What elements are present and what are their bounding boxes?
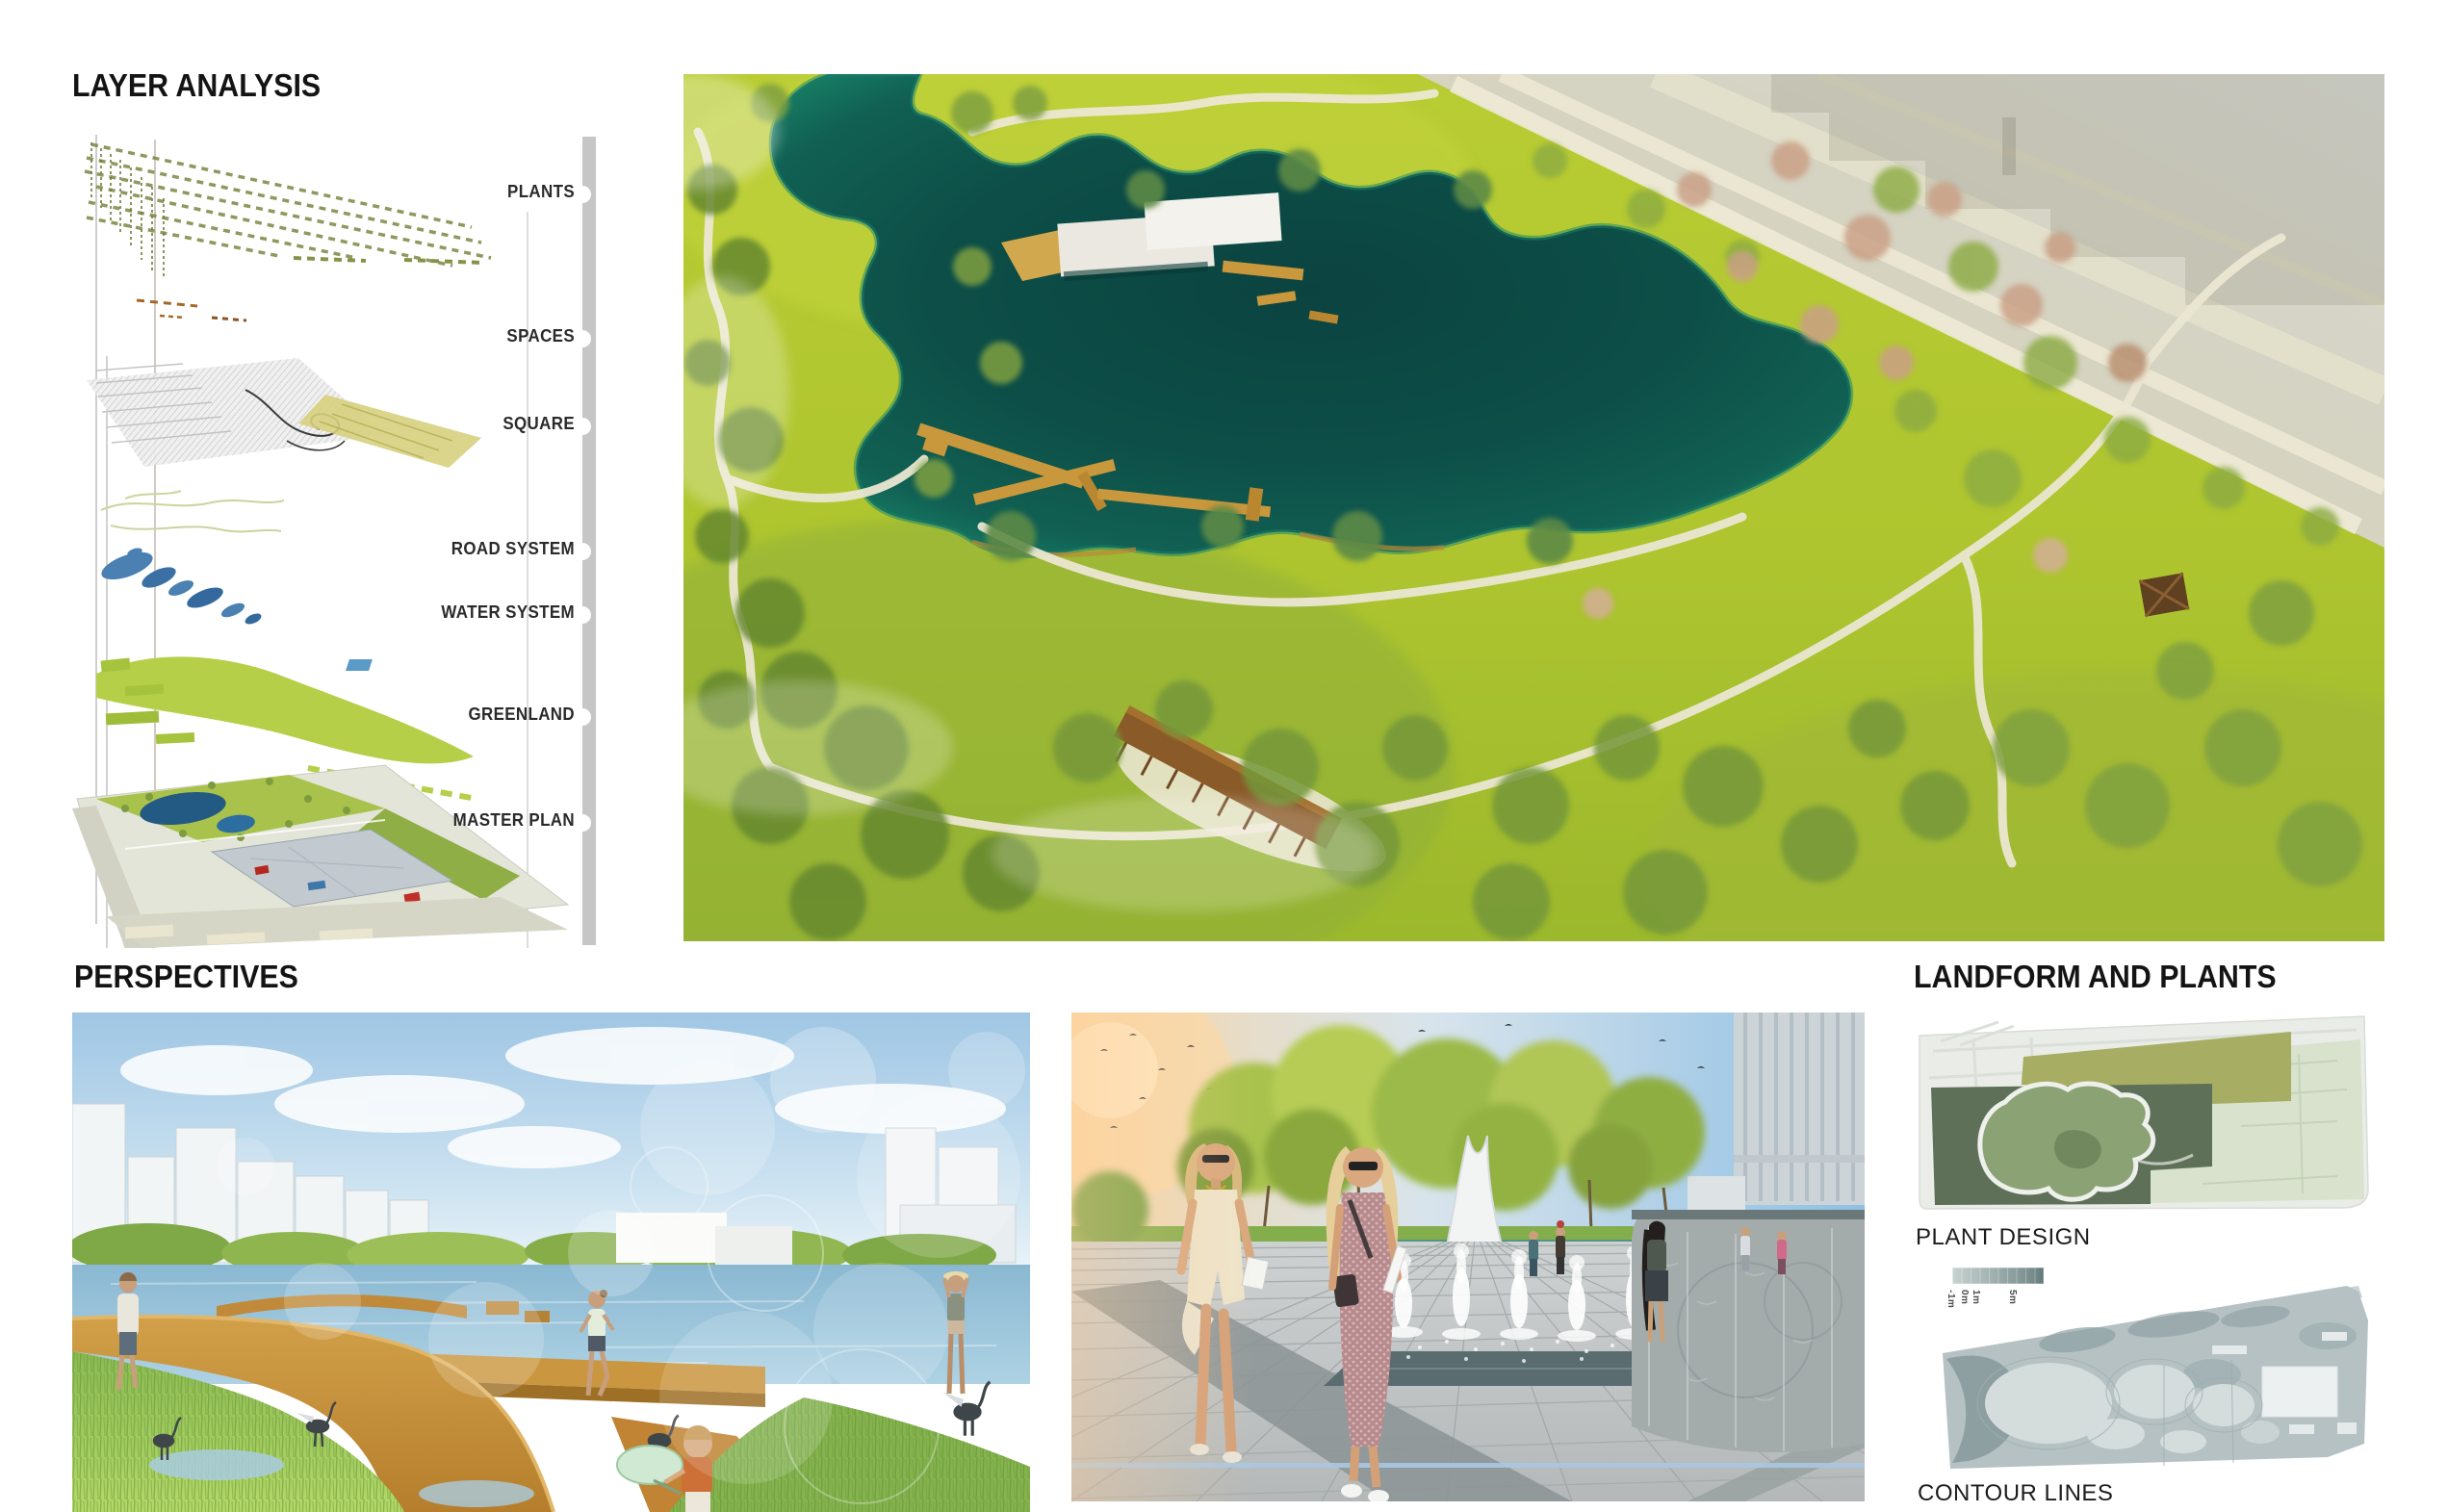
section-title-landform: LANDFORM AND PLANTS — [1914, 959, 2277, 995]
perspective-waterfront-rendering — [72, 1012, 1030, 1512]
perspective-plaza-rendering — [1071, 1012, 1865, 1501]
spaces-layer-art — [137, 258, 483, 320]
sun-flare-overlay — [1071, 1012, 1254, 1501]
layer-label-spaces: SPACES — [122, 326, 575, 346]
layer-label-greenland: GREENLAND — [122, 705, 575, 725]
layer-label-road-system: ROAD SYSTEM — [122, 539, 575, 559]
layer-label-square: SQUARE — [122, 414, 575, 434]
chimney-silhouette — [2002, 117, 2016, 175]
section-title-perspectives: PERSPECTIVES — [74, 959, 298, 995]
layer-label-water-system: WATER SYSTEM — [122, 602, 575, 623]
plants-layer-art — [85, 144, 491, 266]
plant-design-map — [1914, 1011, 2375, 1215]
pavilion — [2139, 573, 2189, 616]
layer-label-master-plan: MASTER PLAN — [122, 810, 575, 831]
square-layer-art — [87, 358, 481, 468]
contour-lines-label: CONTOUR LINES — [1918, 1480, 2113, 1507]
presentation-board: LAYER ANALYSIS PERSPECTIVES LANDFORM AND… — [0, 0, 2448, 1512]
layer-label-plants: PLANTS — [122, 182, 575, 202]
contour-lines-map — [1923, 1278, 2387, 1482]
plant-design-label: PLANT DESIGN — [1916, 1224, 2091, 1251]
section-title-layer-analysis: LAYER ANALYSIS — [72, 67, 321, 104]
master-plan-layer-art — [72, 765, 568, 948]
park-aerial-rendering — [683, 74, 2384, 941]
road-system-layer-art — [101, 491, 284, 531]
